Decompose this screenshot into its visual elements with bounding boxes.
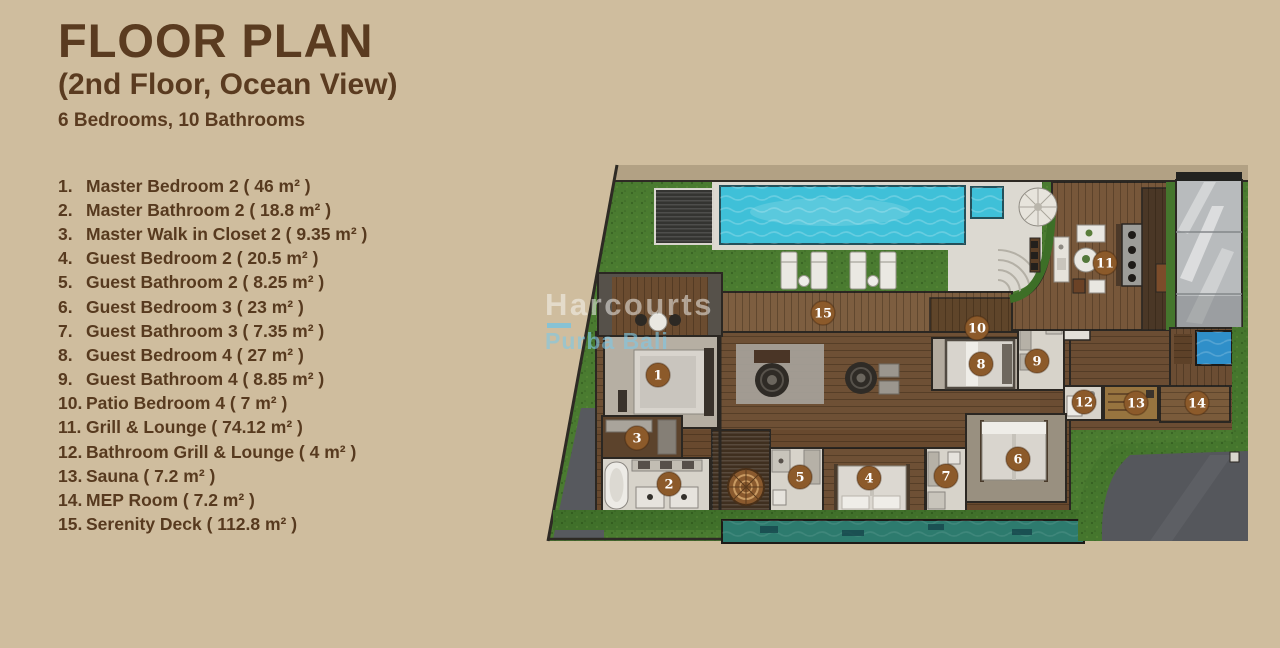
legend-item-number: 3.: [58, 224, 86, 245]
legend-item-label: MEP Room ( 7.2 m² ): [86, 490, 255, 511]
room-marker-14: 14: [1185, 391, 1209, 415]
legend-item-number: 6.: [58, 297, 86, 318]
console: [754, 350, 790, 363]
legend-item-number: 11.: [58, 417, 86, 438]
legend-item-number: 10.: [58, 393, 86, 414]
legend-item: 3.Master Walk in Closet 2 ( 9.35 m² ): [58, 222, 367, 246]
room-marker-4: 4: [857, 466, 881, 490]
side-table: [799, 276, 810, 287]
legend-item: 8.Guest Bedroom 4 ( 27 m² ): [58, 343, 367, 367]
svg-text:5: 5: [795, 471, 804, 486]
legend-item-number: 7.: [58, 321, 86, 342]
legend-item-number: 2.: [58, 200, 86, 221]
room-marker-15: 15: [811, 301, 835, 325]
legend-item-number: 1.: [58, 176, 86, 197]
floor-plan-rendering: 123456789101112131415 Harcourts Purba Ba…: [540, 158, 1256, 560]
room-marker-2: 2: [657, 472, 681, 496]
legend-item-label: Guest Bathroom 3 ( 7.35 m² ): [86, 321, 324, 342]
legend-item: 4.Guest Bedroom 2 ( 20.5 m² ): [58, 247, 367, 271]
legend-item-label: Sauna ( 7.2 m² ): [86, 466, 215, 487]
legend-item-label: Bathroom Grill & Lounge ( 4 m² ): [86, 442, 356, 463]
deck-lounge-a: [736, 344, 824, 404]
legend-item-number: 15.: [58, 514, 86, 535]
room-marker-12: 12: [1072, 390, 1096, 414]
svg-text:9: 9: [1032, 355, 1041, 370]
legend-item: 11.Grill & Lounge ( 74.12 m² ): [58, 416, 367, 440]
legend-item-number: 4.: [58, 248, 86, 269]
legend-item-label: Patio Bedroom 4 ( 7 m² ): [86, 393, 287, 414]
room-marker-6: 6: [1006, 447, 1030, 471]
room-master-bathroom-2: [602, 458, 710, 512]
shower: [928, 492, 945, 509]
legend-item: 5.Guest Bathroom 2 ( 8.25 m² ): [58, 271, 367, 295]
svg-text:2: 2: [664, 478, 673, 493]
legend-item: 10.Patio Bedroom 4 ( 7 m² ): [58, 392, 367, 416]
legend-item-label: Guest Bathroom 2 ( 8.25 m² ): [86, 272, 324, 293]
top-walkway: [615, 165, 1248, 180]
legend-item: 1.Master Bedroom 2 ( 46 m² ): [58, 174, 367, 198]
room-marker-8: 8: [969, 352, 993, 376]
legend-item: 15.Serenity Deck ( 112.8 m² ): [58, 513, 367, 537]
legend-item: 6.Guest Bedroom 3 ( 23 m² ): [58, 295, 367, 319]
legend-item-number: 8.: [58, 345, 86, 366]
legend-item-number: 9.: [58, 369, 86, 390]
svg-text:3: 3: [632, 432, 641, 447]
legend-item-number: 14.: [58, 490, 86, 511]
legend-item: 12.Bathroom Grill & Lounge ( 4 m² ): [58, 440, 367, 464]
room-marker-13: 13: [1124, 391, 1148, 415]
legend-item-number: 12.: [58, 442, 86, 463]
svg-text:11: 11: [1096, 257, 1114, 272]
entry-chair: [669, 314, 681, 326]
entry-table: [649, 313, 667, 331]
legend-item: 7.Guest Bathroom 3 ( 7.35 m² ): [58, 319, 367, 343]
svg-text:14: 14: [1188, 397, 1206, 412]
legend-item-label: Grill & Lounge ( 74.12 m² ): [86, 417, 303, 438]
legend-item-label: Master Bathroom 2 ( 18.8 m² ): [86, 200, 331, 221]
page-summary: 6 Bedrooms, 10 Bathrooms: [58, 110, 398, 132]
room-legend: 1.Master Bedroom 2 ( 46 m² ) 2.Master Ba…: [58, 174, 367, 537]
svg-text:1: 1: [653, 369, 662, 384]
entry-chair: [635, 314, 647, 326]
svg-text:7: 7: [941, 470, 950, 485]
svg-text:15: 15: [814, 307, 832, 322]
louver-skylight: [655, 189, 713, 244]
room-marker-10: 10: [965, 316, 989, 340]
legend-item-label: Serenity Deck ( 112.8 m² ): [86, 514, 297, 535]
toilet: [948, 452, 960, 464]
legend-item-label: Guest Bedroom 4 ( 27 m² ): [86, 345, 304, 366]
page-title: FLOOR PLAN: [58, 16, 398, 65]
room-marker-11: 11: [1093, 251, 1117, 275]
svg-text:8: 8: [976, 358, 985, 373]
room-marker-9: 9: [1025, 349, 1049, 373]
title-block: FLOOR PLAN (2nd Floor, Ocean View) 6 Bed…: [58, 16, 398, 132]
room-marker-7: 7: [934, 464, 958, 488]
svg-text:4: 4: [864, 472, 873, 487]
legend-item: 13.Sauna ( 7.2 m² ): [58, 464, 367, 488]
legend-item-number: 5.: [58, 272, 86, 293]
svg-text:6: 6: [1013, 453, 1022, 468]
legend-item-label: Master Bedroom 2 ( 46 m² ): [86, 176, 311, 197]
svg-text:12: 12: [1075, 396, 1093, 411]
side-table: [868, 276, 879, 287]
svg-text:10: 10: [968, 322, 986, 337]
legend-item-label: Guest Bathroom 4 ( 8.85 m² ): [86, 369, 324, 390]
legend-item: 14.MEP Room ( 7.2 m² ): [58, 488, 367, 512]
legend-item-number: 13.: [58, 466, 86, 487]
carport-canopy: [1142, 172, 1242, 330]
floor-plan-page: FLOOR PLAN (2nd Floor, Ocean View) 6 Bed…: [0, 0, 1280, 648]
legend-item: 9.Guest Bathroom 4 ( 8.85 m² ): [58, 368, 367, 392]
room-marker-5: 5: [788, 465, 812, 489]
room-marker-1: 1: [646, 363, 670, 387]
legend-item-label: Master Walk in Closet 2 ( 9.35 m² ): [86, 224, 367, 245]
toilet: [773, 490, 786, 505]
legend-item-label: Guest Bedroom 3 ( 23 m² ): [86, 297, 304, 318]
page-subtitle: (2nd Floor, Ocean View): [58, 68, 398, 101]
room-marker-3: 3: [625, 426, 649, 450]
svg-text:13: 13: [1127, 397, 1145, 412]
master-suite-entry: [598, 273, 722, 336]
legend-item-label: Guest Bedroom 2 ( 20.5 m² ): [86, 248, 318, 269]
jacuzzi-deck: [1170, 328, 1236, 386]
legend-item: 2.Master Bathroom 2 ( 18.8 m² ): [58, 198, 367, 222]
